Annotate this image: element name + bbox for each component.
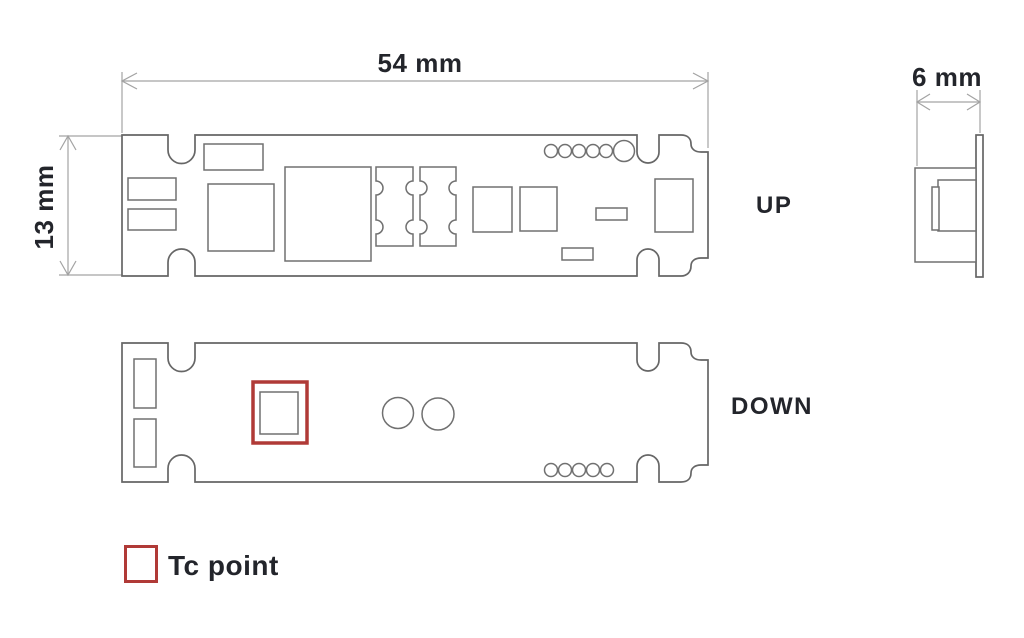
pad <box>601 464 614 477</box>
view-up-label: UP <box>756 194 792 218</box>
component-tc <box>260 392 298 434</box>
component-castellated <box>376 167 413 246</box>
component-ic-large <box>285 167 371 261</box>
mounting-hole <box>422 398 454 430</box>
board-top-view <box>122 135 708 276</box>
board-side-view <box>915 135 983 277</box>
component <box>128 209 176 230</box>
component-body-inner <box>938 180 976 231</box>
component <box>473 187 512 232</box>
drawing-linework <box>0 0 1024 638</box>
mounting-hole <box>614 141 635 162</box>
view-down-label: DOWN <box>731 395 813 419</box>
component-connector <box>655 179 693 232</box>
dimension-side-6mm <box>917 90 980 166</box>
component-ic <box>208 184 274 251</box>
component <box>562 248 593 260</box>
mounting-hole <box>383 398 414 429</box>
pad <box>559 464 572 477</box>
dim-side-label: 6 mm <box>912 64 982 90</box>
component <box>596 208 627 220</box>
pad <box>587 464 600 477</box>
dim-height-label: 13 mm <box>31 165 57 250</box>
board-outline <box>122 343 708 482</box>
pad <box>545 464 558 477</box>
pad <box>573 464 586 477</box>
component <box>134 419 156 467</box>
board-bottom-view <box>122 343 708 482</box>
tc-point-legend-label: Tc point <box>168 552 279 580</box>
dimension-height-13mm <box>59 136 122 275</box>
led-pad <box>587 145 600 158</box>
pcb-technical-drawing: 54 mm 13 mm 6 mm UP DOWN Tc point <box>0 0 1024 638</box>
dim-width-label: 54 mm <box>378 50 463 76</box>
led-pad <box>545 145 558 158</box>
pcb-edge <box>976 135 983 277</box>
tc-point-legend-swatch <box>124 545 158 583</box>
component <box>204 144 263 170</box>
led-pad <box>573 145 586 158</box>
component-lead <box>932 187 939 230</box>
component <box>134 359 156 408</box>
led-pad <box>600 145 613 158</box>
led-pad <box>559 145 572 158</box>
component <box>128 178 176 200</box>
component-castellated <box>420 167 456 246</box>
component <box>520 187 557 231</box>
